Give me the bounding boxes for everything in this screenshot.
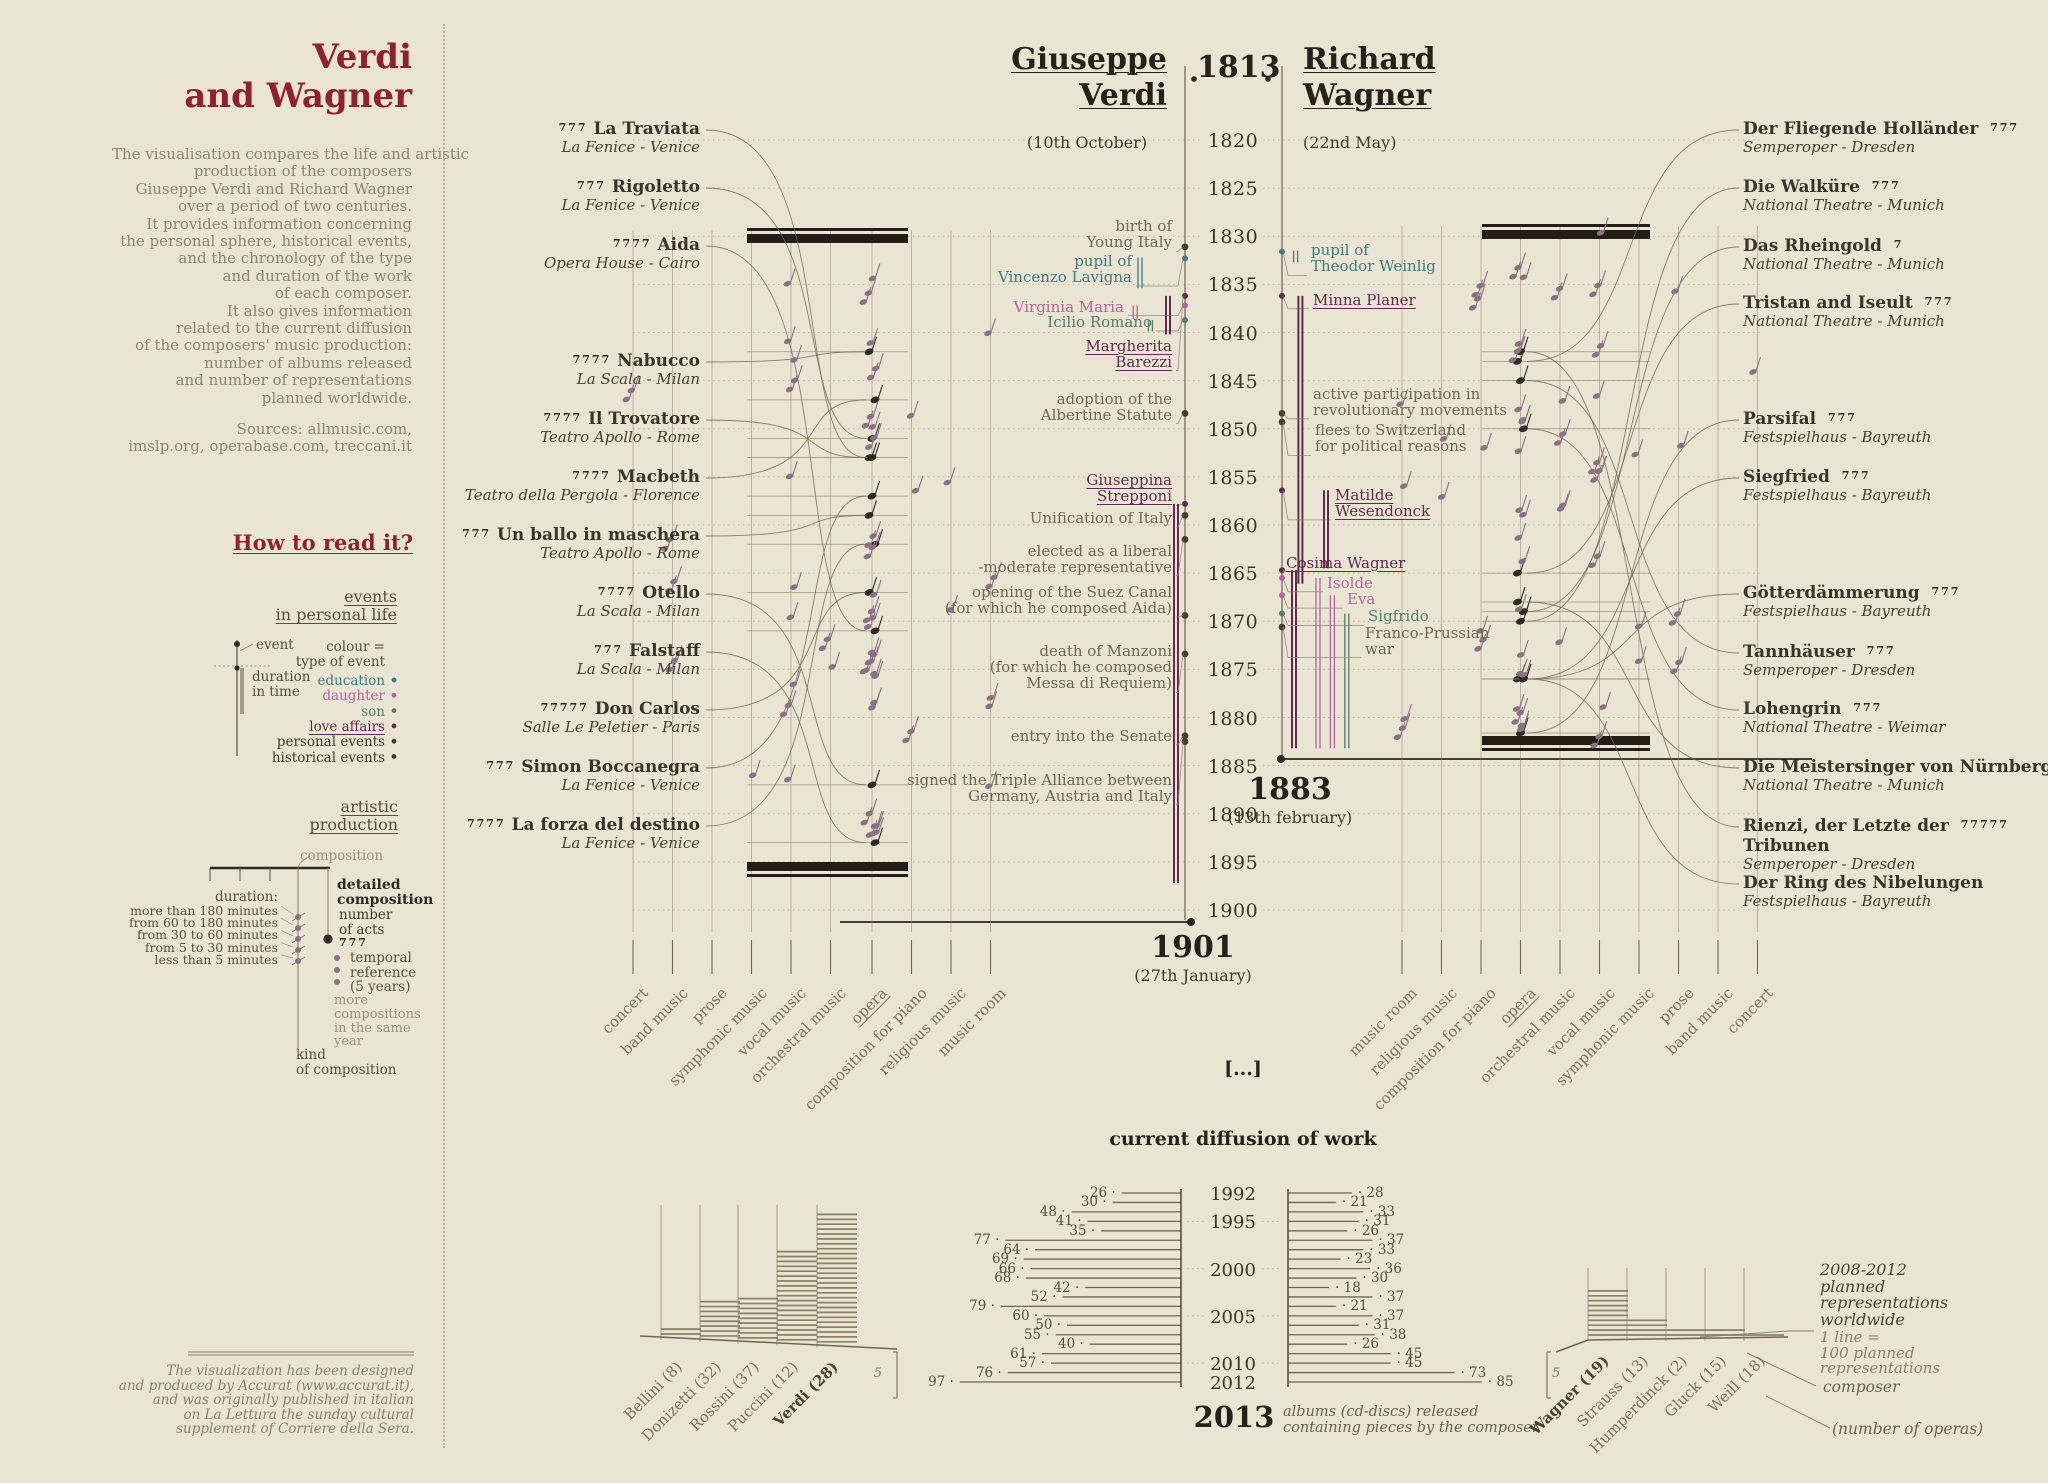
opera-name-line2: Tribunen — [1743, 836, 2043, 856]
event-wagner: MatildeWesendonck — [1335, 487, 1675, 519]
bracket-scale-right: 5 — [1552, 1366, 1560, 1381]
legend-composition: composition — [300, 848, 383, 864]
sidebar-intro-line: It also gives information — [112, 303, 412, 320]
opera-name: Aida — [652, 235, 700, 255]
event-verdi: Icilio Romano — [812, 314, 1152, 330]
diffusion-caption-line1: albums (cd-discs) released — [1283, 1404, 1539, 1420]
verdi-death-year: 1901 — [1093, 930, 1293, 965]
opera-name: Tannhäuser — [1743, 642, 1867, 662]
albums-verdi-value: 52 · — [996, 1289, 1056, 1305]
opera-venue: Festspielhaus - Bayreuth — [1743, 893, 2043, 910]
opera-name: Der Fliegende Holländer — [1743, 119, 1990, 139]
event-verdi: pupil ofVincenzo Lavigna — [792, 253, 1132, 285]
sidebar-footer-line: and was originally published in italian — [114, 1393, 414, 1408]
sidebar-intro-line: the personal sphere, historical events, — [112, 233, 412, 250]
event-verdi-line: Icilio Romano — [812, 314, 1152, 330]
opera-name: Siegfried — [1743, 467, 1842, 487]
opera-label-wagner: Rienzi, der Letzte der 77777TribunenSemp… — [1743, 816, 2043, 873]
acts-marks: 7777 — [573, 353, 612, 366]
planned-scale: 1 line =100 plannedrepresentations — [1820, 1330, 1940, 1377]
diffusion-year: 2005 — [1183, 1307, 1283, 1328]
event-verdi-line: elected as a liberal — [832, 543, 1172, 559]
legend-type-education: education — [185, 673, 385, 689]
opera-label-verdi: 7777 OtelloLa Scala - Milan — [340, 583, 700, 620]
sidebar-intro-line: Giuseppe Verdi and Richard Wagner — [112, 181, 412, 198]
acts-marks: 777 — [1990, 121, 2019, 134]
event-verdi: MargheritaBarezzi — [832, 338, 1172, 370]
albums-wagner-value: · 37 — [1378, 1289, 1404, 1305]
legend-acts-line: number — [339, 908, 392, 923]
opera-venue: Festspielhaus - Bayreuth — [1743, 603, 2043, 620]
timeline-year: 1860 — [1183, 515, 1283, 537]
acts-marks: 777 — [1867, 644, 1896, 657]
timeline-year: 1840 — [1183, 323, 1283, 345]
opera-label-wagner: Tannhäuser 777Semperoper - Dresden — [1743, 642, 2043, 679]
event-verdi-line: Strepponi — [832, 488, 1172, 504]
event-verdi-line: Germany, Austria and Italy — [832, 788, 1172, 804]
event-wagner-line: active participation in — [1313, 386, 1653, 402]
albums-wagner-value: · 26 — [1353, 1223, 1379, 1239]
legend-more-line: in the same — [334, 1022, 421, 1036]
sidebar-intro-line: The visualisation compares the life and … — [112, 146, 412, 163]
event-wagner-line: Cosima Wagner — [1286, 555, 1626, 571]
legend-type-historical-events: historical events — [185, 750, 385, 766]
sidebar-sources-line: Sources: allmusic.com, — [112, 421, 412, 438]
sidebar-sources-line: imslp.org, operabase.com, treccani.it — [112, 438, 412, 455]
legend-type-son: son — [185, 704, 385, 720]
opera-label-wagner: Der Fliegende Holländer 777Semperoper - … — [1743, 119, 2043, 156]
event-verdi: GiuseppinaStrepponi — [832, 472, 1172, 504]
timeline-year: 1830 — [1183, 226, 1283, 248]
acts-marks: 7777 — [572, 469, 611, 482]
opera-label-wagner: Lohengrin 777National Theatre - Weimar — [1743, 699, 2043, 736]
wagner-birth-date: (22nd May) — [1303, 133, 1396, 152]
center-year-1813: 1813 — [1197, 50, 1277, 85]
opera-name: Lohengrin — [1743, 699, 1853, 719]
planned-scale-line: representations — [1820, 1361, 1940, 1377]
legend-acts: numberof acts — [339, 908, 392, 937]
acts-marks: 7777 — [598, 585, 637, 598]
timeline-year: 1875 — [1183, 659, 1283, 681]
composer-name-wagner: Richard Wagner — [1303, 42, 1436, 114]
timeline-year: 1855 — [1183, 467, 1283, 489]
sidebar-intro-line: and duration of the work — [112, 268, 412, 285]
albums-wagner-value: · 85 — [1488, 1374, 1514, 1390]
acts-marks: 777 — [486, 759, 515, 772]
legend-temporal: temporalreference(5 years) — [350, 951, 416, 995]
event-verdi-line: Unification of Italy — [832, 510, 1172, 526]
opera-venue: La Scala - Milan — [340, 661, 700, 678]
legend-temporal-line: reference — [350, 966, 416, 981]
composer-name-verdi: Giuseppe Verdi — [947, 42, 1167, 114]
event-wagner-line: pupil of — [1311, 242, 1651, 258]
opera-name: Die Meistersinger von Nürnberg — [1743, 757, 2048, 777]
acts-marks: 7777 — [544, 411, 583, 424]
albums-wagner-value: · 45 — [1397, 1355, 1423, 1371]
legend-more-line: more — [334, 994, 421, 1008]
opera-venue: La Fenice - Venice — [340, 777, 700, 794]
legend-type-love-affairs: love affairs — [185, 719, 385, 735]
opera-label-wagner: Götterdämmerung 777Festspielhaus - Bayre… — [1743, 583, 2043, 620]
acts-marks: 777 — [1925, 295, 1954, 308]
opera-venue: National Theatre - Weimar — [1743, 719, 2043, 736]
timeline-year: 1865 — [1183, 563, 1283, 585]
opera-venue: National Theatre - Munich — [1743, 313, 2043, 330]
legend-colour-label: colour =type of event — [185, 640, 385, 670]
event-verdi: adoption of theAlbertine Statute — [832, 391, 1172, 423]
event-wagner-line: for political reasons — [1315, 438, 1655, 454]
poster-title-line1: Verdi — [90, 38, 412, 77]
opera-label-verdi: 7777 MacbethTeatro della Pergola - Flore… — [340, 467, 700, 504]
production-legend-heading1: artistic — [198, 798, 398, 816]
event-verdi-line: Messa di Requiem) — [832, 675, 1172, 691]
event-wagner: Franco-Prussianwar — [1365, 625, 1705, 657]
acts-marks: 777 — [1872, 179, 1901, 192]
timeline-year: 1870 — [1183, 611, 1283, 633]
diffusion-year: 2012 — [1183, 1373, 1283, 1394]
sidebar-intro-line: and the chronology of the type — [112, 250, 412, 267]
event-verdi-line: death of Manzoni — [832, 643, 1172, 659]
legend-detailed: detailedcomposition — [337, 878, 433, 908]
diffusion-year: 2000 — [1183, 1260, 1283, 1281]
event-verdi-line: -moderate representative — [832, 559, 1172, 575]
opera-name: Parsifal — [1743, 409, 1828, 429]
legend-detailed-line: detailed — [337, 878, 433, 893]
albums-verdi-value: 68 · — [960, 1270, 1020, 1286]
poster-title-line2: and Wagner — [90, 77, 412, 116]
opera-label-verdi: 777 Un ballo in mascheraTeatro Apollo - … — [340, 525, 700, 562]
opera-venue: Semperoper - Dresden — [1743, 856, 2043, 873]
sidebar-footer-line: supplement of Corriere della Sera. — [114, 1422, 414, 1437]
event-wagner-line: Minna Planer — [1313, 292, 1653, 308]
opera-venue: National Theatre - Munich — [1743, 256, 2043, 273]
opera-name: Die Walküre — [1743, 177, 1872, 197]
opera-label-wagner: Siegfried 777Festspielhaus - Bayreuth — [1743, 467, 2043, 504]
acts-marks: 7 — [1894, 238, 1904, 251]
event-verdi-line: Giuseppina — [832, 472, 1172, 488]
opera-name: Simon Boccanegra — [515, 757, 700, 777]
event-wagner-line: Sigfrido — [1368, 608, 1708, 624]
opera-name: Don Carlos — [589, 699, 700, 719]
legend-acts-glyph: 777 — [339, 936, 368, 949]
sidebar-intro-line: related to the current diffusion — [112, 320, 412, 337]
acts-marks: 7777 — [467, 817, 506, 830]
event-wagner: flees to Switzerlandfor political reason… — [1315, 422, 1655, 454]
albums-wagner-value: · 21 — [1342, 1298, 1368, 1314]
legend-detailed-line: composition — [337, 893, 433, 908]
diffusion-year: 1995 — [1183, 1212, 1283, 1233]
acts-marks: 7777 — [613, 237, 652, 250]
albums-wagner-value: · 23 — [1346, 1251, 1372, 1267]
event-wagner-line: revolutionary movements — [1313, 402, 1653, 418]
opera-name: Macbeth — [611, 467, 700, 487]
opera-venue: National Theatre - Munich — [1743, 777, 2043, 794]
albums-verdi-value: 97 · — [894, 1374, 954, 1390]
timeline-year: 1900 — [1183, 900, 1283, 922]
event-wagner-line: flees to Switzerland — [1315, 422, 1655, 438]
opera-name: Götterdämmerung — [1743, 583, 1931, 603]
timeline-year: 1895 — [1183, 852, 1283, 874]
planned-period-line: worldwide — [1820, 1312, 1948, 1329]
acts-marks: 77777 — [541, 701, 589, 714]
timeline-year: 1890 — [1183, 804, 1283, 826]
event-verdi-line: Margherita — [832, 338, 1172, 354]
verdi-birth-date: (10th October) — [997, 133, 1177, 152]
legend-more-line: compositions — [334, 1008, 421, 1022]
event-verdi: Unification of Italy — [832, 510, 1172, 526]
opera-venue: Salle Le Peletier - Paris — [340, 719, 700, 736]
event-wagner-line: Matilde — [1335, 487, 1675, 503]
sidebar-footer-line: on La Lettura the sunday cultural — [114, 1408, 414, 1423]
opera-venue: Teatro della Pergola - Florence — [340, 487, 700, 504]
opera-label-verdi: 7777 La forza del destinoLa Fenice - Ven… — [340, 815, 700, 852]
verdi-last-name: Verdi — [1079, 78, 1167, 113]
sidebar-intro: The visualisation compares the life and … — [112, 146, 412, 407]
sidebar-intro-line: over a period of two centuries. — [112, 198, 412, 215]
event-verdi: death of Manzoni(for which he composedMe… — [832, 643, 1172, 691]
timeline-year: 1885 — [1183, 756, 1283, 778]
opera-name: Rigoletto — [606, 177, 700, 197]
acts-marks: 777 — [594, 643, 623, 656]
acts-marks: 777 — [1931, 585, 1960, 598]
albums-wagner-value: · 33 — [1369, 1242, 1395, 1258]
ellipsis-mark: [...] — [1143, 1058, 1343, 1080]
event-verdi-line: entry into the Senate — [832, 728, 1172, 744]
event-verdi-line: birth of — [832, 218, 1172, 234]
event-wagner: Sigfrido — [1368, 608, 1708, 624]
event-wagner: active participation inrevolutionary mov… — [1313, 386, 1653, 418]
event-verdi-line: opening of the Suez Canal — [832, 584, 1172, 600]
albums-wagner-value: · 18 — [1335, 1280, 1361, 1296]
sidebar-footer: The visualization has been designedand p… — [114, 1364, 414, 1437]
albums-wagner-value: · 38 — [1381, 1327, 1407, 1343]
event-wagner: Eva — [1347, 591, 1687, 607]
legend-kind-line: of composition — [296, 1063, 397, 1078]
acts-marks: 77777 — [1961, 818, 2009, 831]
legend-colour-label-line: colour = — [185, 640, 385, 655]
sidebar-intro-line: number of albums released — [112, 355, 412, 372]
opera-name: Der Ring des Nibelungen — [1743, 873, 1995, 893]
timeline-year: 1825 — [1183, 178, 1283, 200]
event-wagner: Isolde — [1327, 575, 1667, 591]
opera-venue: La Fenice - Venice — [340, 835, 700, 852]
opera-venue: Festspielhaus - Bayreuth — [1743, 429, 2043, 446]
bracket-scale-left: 5 — [862, 1366, 882, 1381]
legend-colour-label-line: type of event — [185, 655, 385, 670]
event-wagner-line: war — [1365, 641, 1705, 657]
diffusion-year: 2010 — [1183, 1354, 1283, 1375]
acts-marks: 777 — [1853, 701, 1882, 714]
acts-marks: 777 — [559, 121, 588, 134]
opera-name: Rienzi, der Letzte der — [1743, 816, 1961, 836]
verdi-death-date: (27th January) — [1093, 966, 1293, 985]
timeline-year: 1880 — [1183, 708, 1283, 730]
opera-name: Il Trovatore — [582, 409, 700, 429]
wagner-last-name: Wagner — [1303, 78, 1431, 113]
albums-wagner-value: · 21 — [1342, 1194, 1368, 1210]
opera-name: La Traviata — [588, 119, 700, 139]
event-verdi: entry into the Senate — [832, 728, 1172, 744]
sidebar-intro-line: production of the composers — [112, 163, 412, 180]
albums-wagner-value: · 30 — [1362, 1270, 1388, 1286]
acts-marks: 777 — [577, 179, 606, 192]
legend-kind: kindof composition — [296, 1048, 397, 1077]
poster-title: Verdi and Wagner — [90, 38, 412, 116]
infographic-root: Verdi and Wagner How to read it? events … — [0, 0, 2048, 1483]
label-composer: composer — [1823, 1378, 1900, 1396]
planned-period: 2008-2012plannedrepresentationsworldwide — [1820, 1262, 1948, 1328]
opera-venue: La Scala - Milan — [340, 603, 700, 620]
legend-kind-line: kind — [296, 1048, 397, 1063]
opera-label-wagner: Tristan and Iseult 777National Theatre -… — [1743, 293, 2043, 330]
event-verdi: signed the Triple Alliance betweenGerman… — [832, 772, 1172, 804]
verdi-first-name: Giuseppe — [1011, 42, 1167, 77]
legend-duration-item: less than 5 minutes — [108, 952, 278, 967]
acts-marks: 777 — [1842, 469, 1871, 482]
diffusion-year: 1992 — [1183, 1184, 1283, 1205]
sidebar-intro-line: of each composer. — [112, 285, 412, 302]
event-verdi: birth ofYoung Italy — [832, 218, 1172, 250]
timeline-year: 1850 — [1183, 419, 1283, 441]
wagner-first-name: Richard — [1303, 42, 1436, 77]
opera-venue: Semperoper - Dresden — [1743, 662, 2043, 679]
sidebar-footer-line: The visualization has been designed — [114, 1364, 414, 1379]
event-verdi-line: Young Italy — [832, 234, 1172, 250]
legend-acts-line: of acts — [339, 923, 392, 938]
event-verdi-line: Vincenzo Lavigna — [792, 269, 1132, 285]
event-wagner-line: Isolde — [1327, 575, 1667, 591]
albums-verdi-value: 35 · — [1035, 1223, 1095, 1239]
opera-name: La forza del destino — [506, 815, 700, 835]
opera-name: Falstaff — [623, 641, 700, 661]
opera-label-wagner: Die Meistersinger von Nürnberg 777Nation… — [1743, 757, 2043, 794]
event-verdi-line: adoption of the — [832, 391, 1172, 407]
opera-venue: Festspielhaus - Bayreuth — [1743, 487, 2043, 504]
event-verdi-line: Albertine Statute — [832, 407, 1172, 423]
diffusion-caption: albums (cd-discs) released containing pi… — [1283, 1404, 1539, 1436]
event-wagner: Cosima Wagner — [1286, 555, 1626, 571]
albums-wagner-value: · 73 — [1460, 1365, 1486, 1381]
event-wagner-line: Eva — [1347, 591, 1687, 607]
opera-venue: National Theatre - Munich — [1743, 197, 2043, 214]
timeline-year: 1845 — [1183, 371, 1283, 393]
event-verdi-line: (for which he composed — [832, 659, 1172, 675]
event-wagner-line: Wesendonck — [1335, 503, 1675, 519]
opera-name: Otello — [636, 583, 700, 603]
opera-label-wagner: Das Rheingold 7National Theatre - Munich — [1743, 236, 2043, 273]
timeline-year: 1820 — [1183, 130, 1283, 152]
sidebar-intro-line: of the composers' music production: — [112, 337, 412, 354]
opera-name: Un ballo in maschera — [491, 525, 700, 545]
legend-more: morecompositionsin the sameyear — [334, 994, 421, 1049]
sidebar-intro-line: and number of representations — [112, 372, 412, 389]
opera-label-wagner: Der Ring des Nibelungen Festspielhaus - … — [1743, 873, 2043, 910]
opera-label-verdi: 777 Simon BoccanegraLa Fenice - Venice — [340, 757, 700, 794]
sidebar-sources: Sources: allmusic.com,imslp.org, operaba… — [112, 421, 412, 456]
legend-type-daughter: daughter — [185, 688, 385, 704]
diffusion-heading: current diffusion of work — [1043, 1128, 1443, 1150]
label-number-of-operas: (number of operas) — [1832, 1420, 1983, 1438]
albums-wagner-value: · 26 — [1353, 1336, 1379, 1352]
opera-venue: Semperoper - Dresden — [1743, 139, 2043, 156]
opera-venue: Teatro Apollo - Rome — [340, 545, 700, 562]
event-verdi-line: Barezzi — [832, 354, 1172, 370]
opera-name: Nabucco — [611, 351, 700, 371]
event-verdi-line: signed the Triple Alliance between — [832, 772, 1172, 788]
sidebar-footer-line: and produced by Accurat (www.accurat.it)… — [114, 1379, 414, 1394]
legend-temporal-line: temporal — [350, 951, 416, 966]
opera-label-verdi: 77777 Don CarlosSalle Le Peletier - Pari… — [340, 699, 700, 736]
event-wagner: pupil ofTheodor Weinlig — [1311, 242, 1651, 274]
opera-label-wagner: Die Walküre 777National Theatre - Munich — [1743, 177, 2043, 214]
diffusion-caption-line2: containing pieces by the composer — [1283, 1420, 1539, 1436]
event-wagner-line: Franco-Prussian — [1365, 625, 1705, 641]
sidebar-intro-line: planned worldwide. — [112, 390, 412, 407]
event-wagner: Minna Planer — [1313, 292, 1653, 308]
acts-marks: 777 — [462, 527, 491, 540]
event-verdi-line: (for which he composed Aida) — [832, 600, 1172, 616]
opera-name: Das Rheingold — [1743, 236, 1894, 256]
timeline-year: 1835 — [1183, 274, 1283, 296]
sidebar-intro-line: It provides information concerning — [112, 216, 412, 233]
opera-label-verdi: 777 FalstaffLa Scala - Milan — [340, 641, 700, 678]
opera-label-wagner: Parsifal 777Festspielhaus - Bayreuth — [1743, 409, 2043, 446]
opera-name: Tristan and Iseult — [1743, 293, 1925, 313]
event-verdi: elected as a liberal-moderate representa… — [832, 543, 1172, 575]
acts-marks: 777 — [1828, 411, 1857, 424]
event-verdi: opening of the Suez Canal(for which he c… — [832, 584, 1172, 616]
event-wagner-line: Theodor Weinlig — [1311, 258, 1651, 274]
event-verdi-line: pupil of — [792, 253, 1132, 269]
legend-type-personal-events: personal events — [185, 734, 385, 750]
